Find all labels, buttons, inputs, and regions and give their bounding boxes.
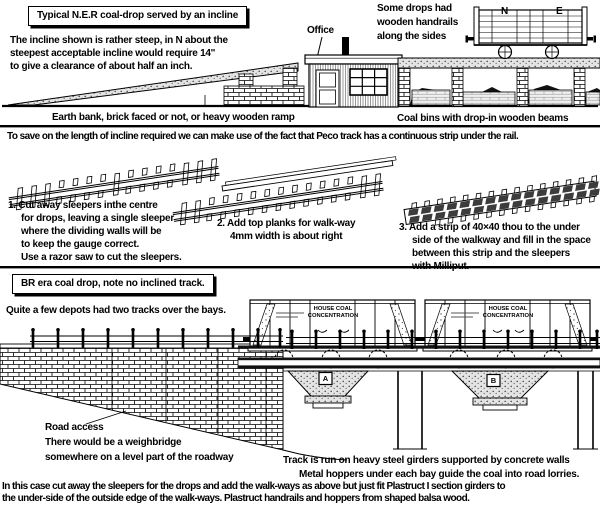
step2-text: 2. Add top planks for walk-way 4mm width… <box>217 217 355 243</box>
br-section-title: BR era coal drop, note no inclined track… <box>12 274 214 294</box>
coal-bins-drawing <box>398 58 600 106</box>
hopper-caption: Metal hoppers under each bay guide the c… <box>299 468 579 481</box>
section1-title: Typical N.E.R coal-drop served by an inc… <box>28 6 247 26</box>
hopper-wagon-b-lettering: HOUSE COAL CONCENTRATION <box>479 306 537 319</box>
steel-girder-drawing <box>238 365 600 368</box>
girder-caption: Track is run on heavy steel girders supp… <box>283 454 570 467</box>
handrail-note-text: Some drops had wooden handrails along th… <box>377 2 458 44</box>
bay-label-a: A <box>319 374 332 383</box>
depots-note: Quite a few depots had two tracks over t… <box>6 304 226 317</box>
step1-text: 1. Cut away sleepers inthe centre for dr… <box>8 199 182 264</box>
wagon-letter-e: E <box>556 6 563 17</box>
section-divider-top <box>0 125 600 127</box>
office-label: Office <box>307 24 334 37</box>
hopper-wagon-a-lettering: HOUSE COAL CONCENTRATION <box>304 306 362 319</box>
ramp-caption: Earth bank, brick faced or not, or heavy… <box>52 111 295 124</box>
ner-wagon-drawing <box>466 7 597 59</box>
bins-caption: Coal bins with drop-in wooden beams <box>397 112 568 125</box>
bay-label-b: B <box>487 376 500 385</box>
step3-text: 3. Add a strip of 40×40 thou to the unde… <box>399 221 591 273</box>
footer-text: In this case cut away the sleepers for t… <box>2 481 505 505</box>
wagon-letter-n: N <box>501 6 508 17</box>
peco-note: To save on the length of incline require… <box>7 130 518 143</box>
coal-drop-diagram-page: Typical N.E.R coal-drop served by an inc… <box>0 0 600 511</box>
incline-intro-text: The incline shown is rather steep, in N … <box>10 34 228 73</box>
road-access-text: Road access There would be a weighbridge… <box>45 420 233 465</box>
